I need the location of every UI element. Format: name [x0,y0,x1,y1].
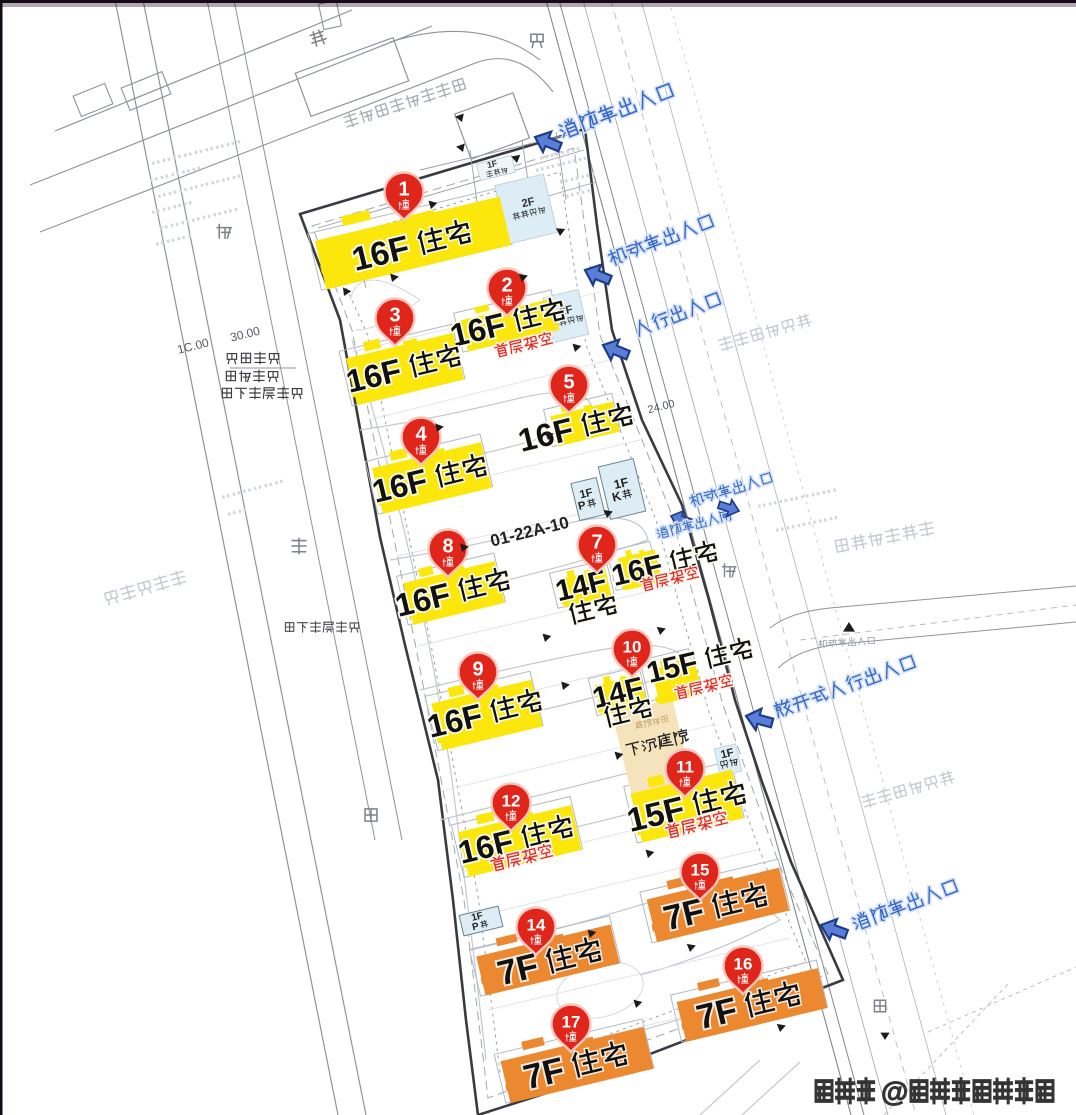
svg-text:8: 8 [442,536,453,558]
svg-text:9: 9 [472,659,483,681]
svg-text:2: 2 [501,275,512,297]
svg-text:12: 12 [502,792,521,811]
svg-text:4: 4 [415,424,427,446]
svg-text:16: 16 [734,955,753,974]
svg-text:7: 7 [591,532,602,554]
svg-text:3: 3 [389,305,400,327]
svg-text:10: 10 [623,638,642,657]
svg-text:15: 15 [691,861,710,880]
svg-text:14: 14 [527,916,546,935]
svg-text:5: 5 [563,372,574,394]
svg-text:17: 17 [562,1013,581,1032]
svg-text:1: 1 [398,179,409,201]
svg-text:@: @ [881,1076,908,1107]
svg-text:11: 11 [676,758,694,777]
